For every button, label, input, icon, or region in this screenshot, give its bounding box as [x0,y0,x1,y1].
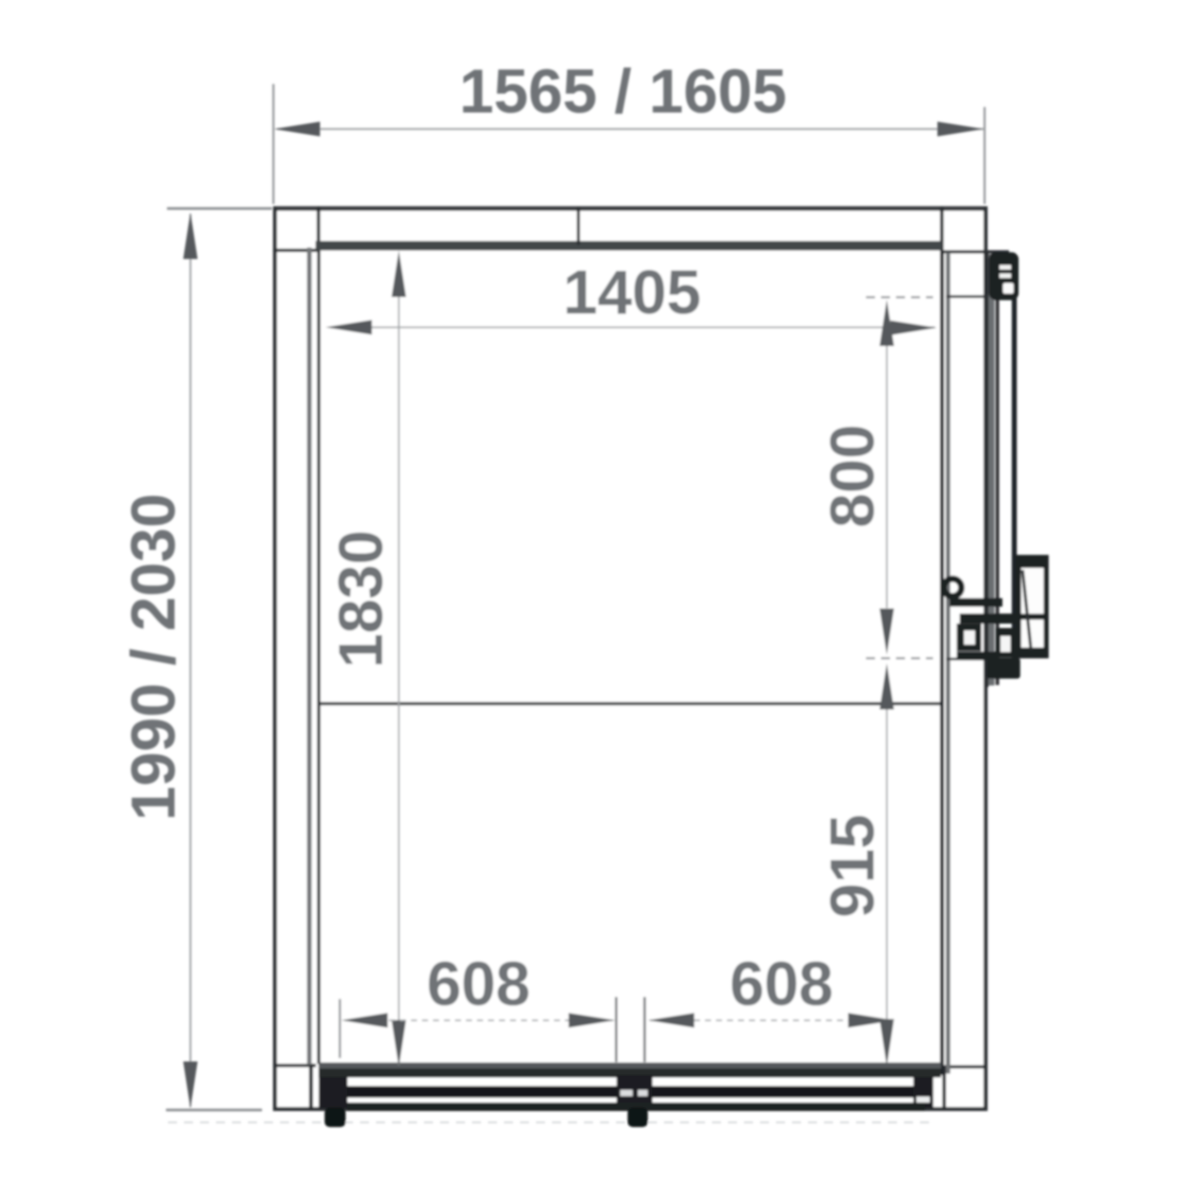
svg-text:915: 915 [819,814,888,917]
svg-text:1565 / 1605: 1565 / 1605 [459,58,787,127]
svg-text:608: 608 [730,950,833,1019]
svg-text:1405: 1405 [563,259,701,328]
svg-text:608: 608 [427,950,530,1019]
svg-text:1830: 1830 [327,530,396,668]
svg-text:1990 / 2030: 1990 / 2030 [120,493,189,821]
svg-text:800: 800 [819,424,888,527]
